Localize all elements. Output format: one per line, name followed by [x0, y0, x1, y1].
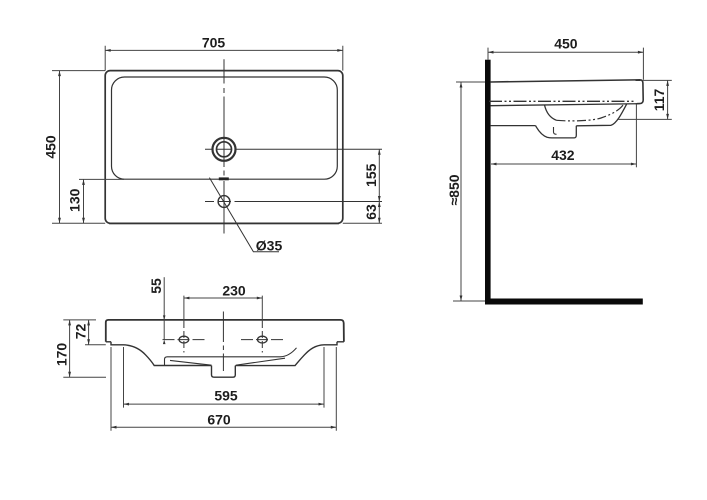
svg-text:670: 670: [207, 412, 231, 428]
svg-text:230: 230: [222, 283, 246, 299]
svg-text:705: 705: [202, 34, 226, 50]
svg-text:595: 595: [214, 388, 238, 404]
svg-text:130: 130: [67, 188, 83, 212]
svg-text:450: 450: [43, 135, 59, 159]
svg-text:Ø35: Ø35: [256, 238, 283, 254]
svg-text:55: 55: [148, 278, 164, 294]
svg-text:170: 170: [53, 343, 69, 367]
svg-text:432: 432: [551, 147, 575, 163]
svg-text:72: 72: [72, 324, 88, 340]
svg-text:450: 450: [554, 36, 578, 52]
svg-text:63: 63: [363, 204, 379, 220]
svg-text:117: 117: [651, 88, 667, 111]
svg-text:≈850: ≈850: [446, 174, 462, 205]
svg-text:155: 155: [363, 163, 379, 187]
